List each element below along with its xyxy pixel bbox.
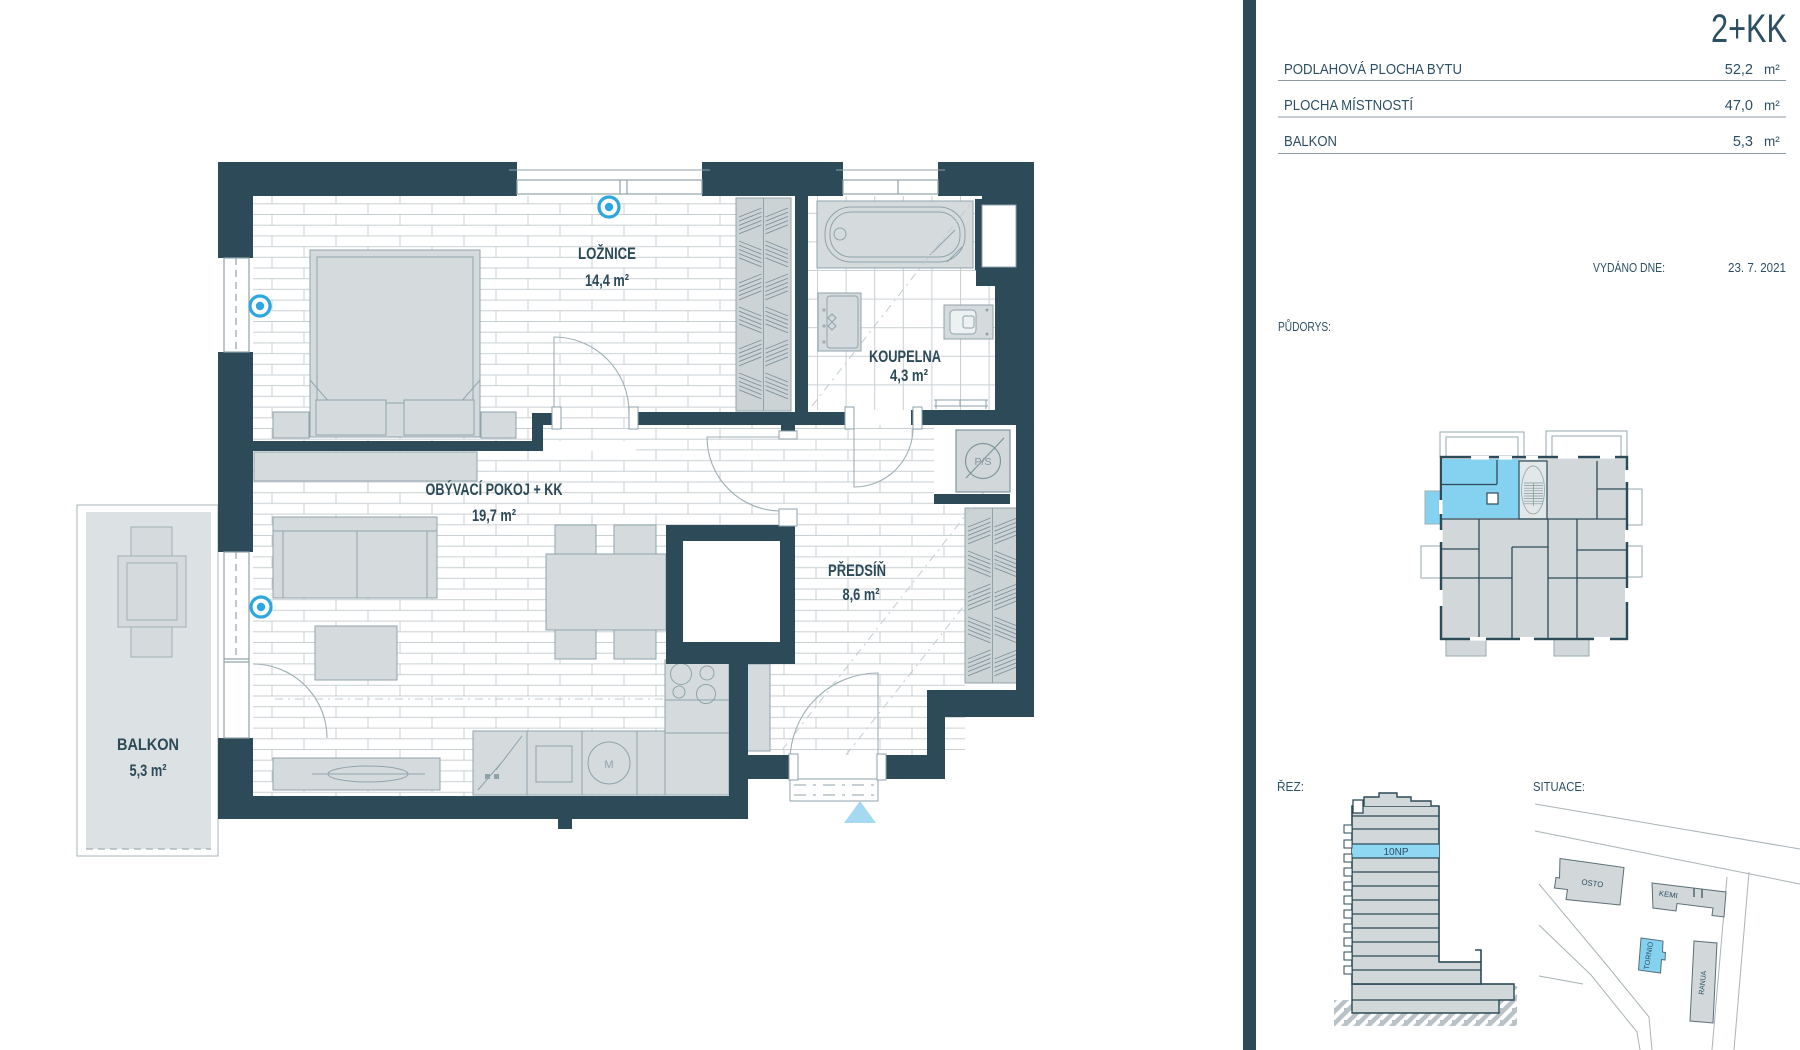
svg-text:19,7 m²: 19,7 m² [472, 507, 516, 525]
svg-text:8,6 m²: 8,6 m² [843, 586, 880, 604]
svg-text:5,3: 5,3 [1733, 134, 1753, 150]
svg-text:2+KK: 2+KK [1711, 7, 1787, 51]
svg-text:52,2: 52,2 [1725, 62, 1753, 78]
svg-text:10NP: 10NP [1384, 846, 1409, 858]
svg-text:m²: m² [1764, 98, 1780, 113]
svg-text:SITUACE:: SITUACE: [1533, 780, 1585, 794]
svg-text:PLOCHA MÍSTNOSTÍ: PLOCHA MÍSTNOSTÍ [1284, 97, 1413, 114]
svg-text:LOŽNICE: LOŽNICE [578, 244, 636, 263]
svg-text:5,3 m²: 5,3 m² [130, 762, 167, 780]
svg-text:OBÝVACÍ POKOJ + KK: OBÝVACÍ POKOJ + KK [426, 480, 563, 499]
svg-text:ŘEZ:: ŘEZ: [1277, 779, 1304, 794]
svg-text:4,3 m²: 4,3 m² [890, 367, 928, 385]
svg-text:m²: m² [1764, 62, 1780, 77]
svg-text:23. 7. 2021: 23. 7. 2021 [1728, 261, 1786, 275]
svg-text:KOUPELNA: KOUPELNA [869, 348, 941, 366]
svg-text:BALKON: BALKON [117, 736, 179, 754]
svg-text:P/S: P/S [975, 456, 992, 468]
svg-text:47,0: 47,0 [1725, 98, 1753, 114]
svg-text:PŮDORYS:: PŮDORYS: [1278, 319, 1331, 334]
svg-text:VYDÁNO DNE:: VYDÁNO DNE: [1593, 260, 1665, 275]
svg-text:14,4 m²: 14,4 m² [585, 272, 629, 290]
svg-text:PŘEDSÍŇ: PŘEDSÍŇ [828, 561, 886, 580]
svg-text:PODLAHOVÁ PLOCHA BYTU: PODLAHOVÁ PLOCHA BYTU [1284, 61, 1462, 78]
svg-text:BALKON: BALKON [1284, 134, 1337, 150]
svg-text:m²: m² [1764, 134, 1780, 149]
svg-text:M: M [604, 759, 613, 771]
